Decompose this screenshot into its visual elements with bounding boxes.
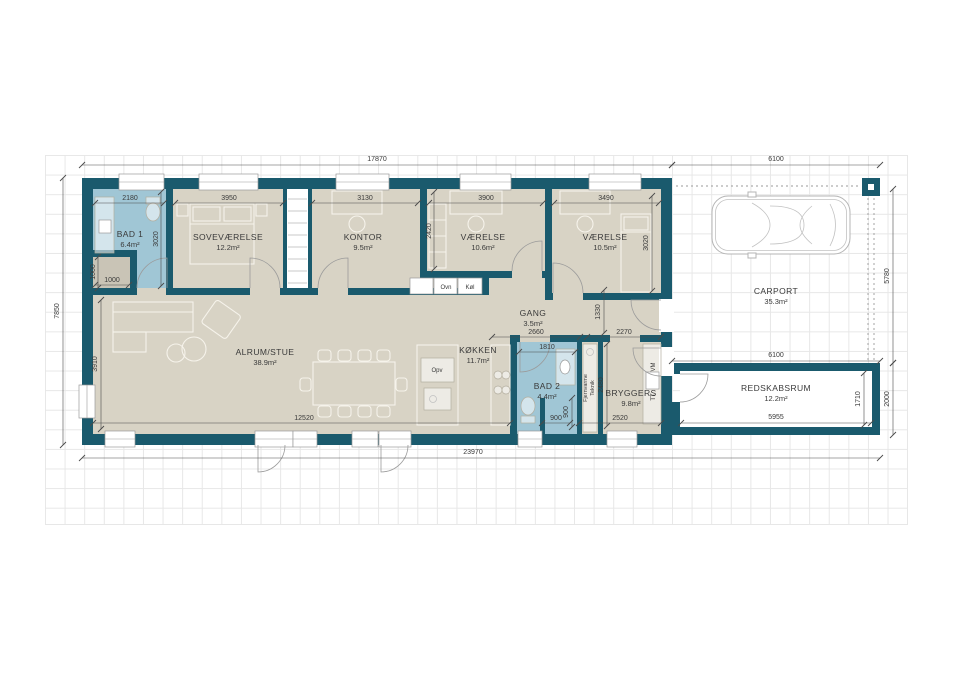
label-teknik: Teknik (590, 380, 596, 396)
dim-2480: 2480 (598, 377, 605, 393)
room-label-bryggers: BRYGGERS (605, 388, 656, 398)
room-area-bryggers: 9.8m² (621, 399, 641, 408)
dim-3910: 3910 (92, 356, 99, 372)
dim-2180: 2180 (122, 195, 138, 202)
appliance-label-koel: Køl (466, 285, 475, 291)
floor-plan-drawing: BAD 1 6.4m² SOVEVÆRELSE 12.2m² KONTOR 9.… (0, 0, 960, 679)
dim-7850: 7850 (54, 303, 61, 319)
dim-2520: 2520 (612, 415, 628, 422)
room-area-sovevaerelse: 12.2m² (216, 243, 240, 252)
dim-1810: 1810 (539, 344, 555, 351)
appliance-label-opv: Opv (431, 368, 442, 374)
room-label-vaerelse2: VÆRELSE (583, 232, 628, 242)
dim-12520: 12520 (294, 415, 314, 422)
dim-23970: 23970 (463, 449, 483, 456)
dim-1710: 1710 (855, 391, 862, 407)
dim-17870: 17870 (367, 156, 387, 163)
dim-3900: 3900 (478, 195, 494, 202)
dim-900-v: 900 (563, 406, 570, 418)
room-label-kokken: KØKKEN (459, 345, 497, 355)
dim-3490: 3490 (598, 195, 614, 202)
room-area-kontor: 9.5m² (353, 243, 373, 252)
dim-1000-v: 1000 (90, 264, 97, 280)
room-area-gang: 3.5m² (523, 319, 543, 328)
room-area-vaerelse1: 10.6m² (471, 243, 495, 252)
room-area-alrum: 38.9m² (253, 358, 277, 367)
dim-3020-v2: 3020 (643, 235, 650, 251)
room-label-carport: CARPORT (754, 286, 798, 296)
room-area-kokken: 11.7m² (467, 356, 490, 365)
room-label-alrum: ALRUM/STUE (236, 347, 295, 357)
room-area-vaerelse2: 10.5m² (593, 243, 617, 252)
dim-900-h: 900 (550, 415, 562, 422)
car-top-view-icon (712, 192, 850, 258)
room-label-bad2: BAD 2 (534, 381, 561, 391)
room-area-redskabsrum: 12.2m² (764, 394, 788, 403)
carport-group (676, 178, 880, 362)
appliance-label-ovn: Ovn (440, 285, 451, 291)
dim-6100-carport: 6100 (768, 156, 784, 163)
room-label-gang: GANG (520, 308, 547, 318)
label-fjernvarme: Fjernvarme (583, 374, 589, 402)
dim-5955: 5955 (768, 414, 784, 421)
dim-2420: 2420 (426, 223, 433, 239)
dim-1000-h: 1000 (104, 277, 120, 284)
dim-1330: 1330 (595, 304, 602, 320)
appliance-label-vm: VM (651, 362, 657, 371)
appliance-label-tt: TT (651, 393, 657, 401)
dim-2000: 2000 (884, 391, 891, 407)
dim-2660: 2660 (528, 329, 544, 336)
room-area-bad2: 4.4m² (537, 392, 557, 401)
dim-5780: 5780 (884, 268, 891, 284)
room-label-vaerelse1: VÆRELSE (461, 232, 506, 242)
dim-3020-bad1: 3020 (153, 231, 160, 247)
floor-plan-canvas: BAD 1 6.4m² SOVEVÆRELSE 12.2m² KONTOR 9.… (0, 0, 960, 679)
dim-6100-shed: 6100 (768, 352, 784, 359)
room-label-bad1: BAD 1 (117, 229, 144, 239)
room-label-kontor: KONTOR (344, 232, 383, 242)
dim-2270: 2270 (616, 329, 632, 336)
room-label-sovevaerelse: SOVEVÆRELSE (193, 232, 263, 242)
room-area-carport: 35.3m² (764, 297, 788, 306)
room-area-bad1: 6.4m² (120, 240, 140, 249)
dim-3130: 3130 (357, 195, 373, 202)
room-label-redskabsrum: REDSKABSRUM (741, 383, 811, 393)
dim-3950: 3950 (221, 195, 237, 202)
